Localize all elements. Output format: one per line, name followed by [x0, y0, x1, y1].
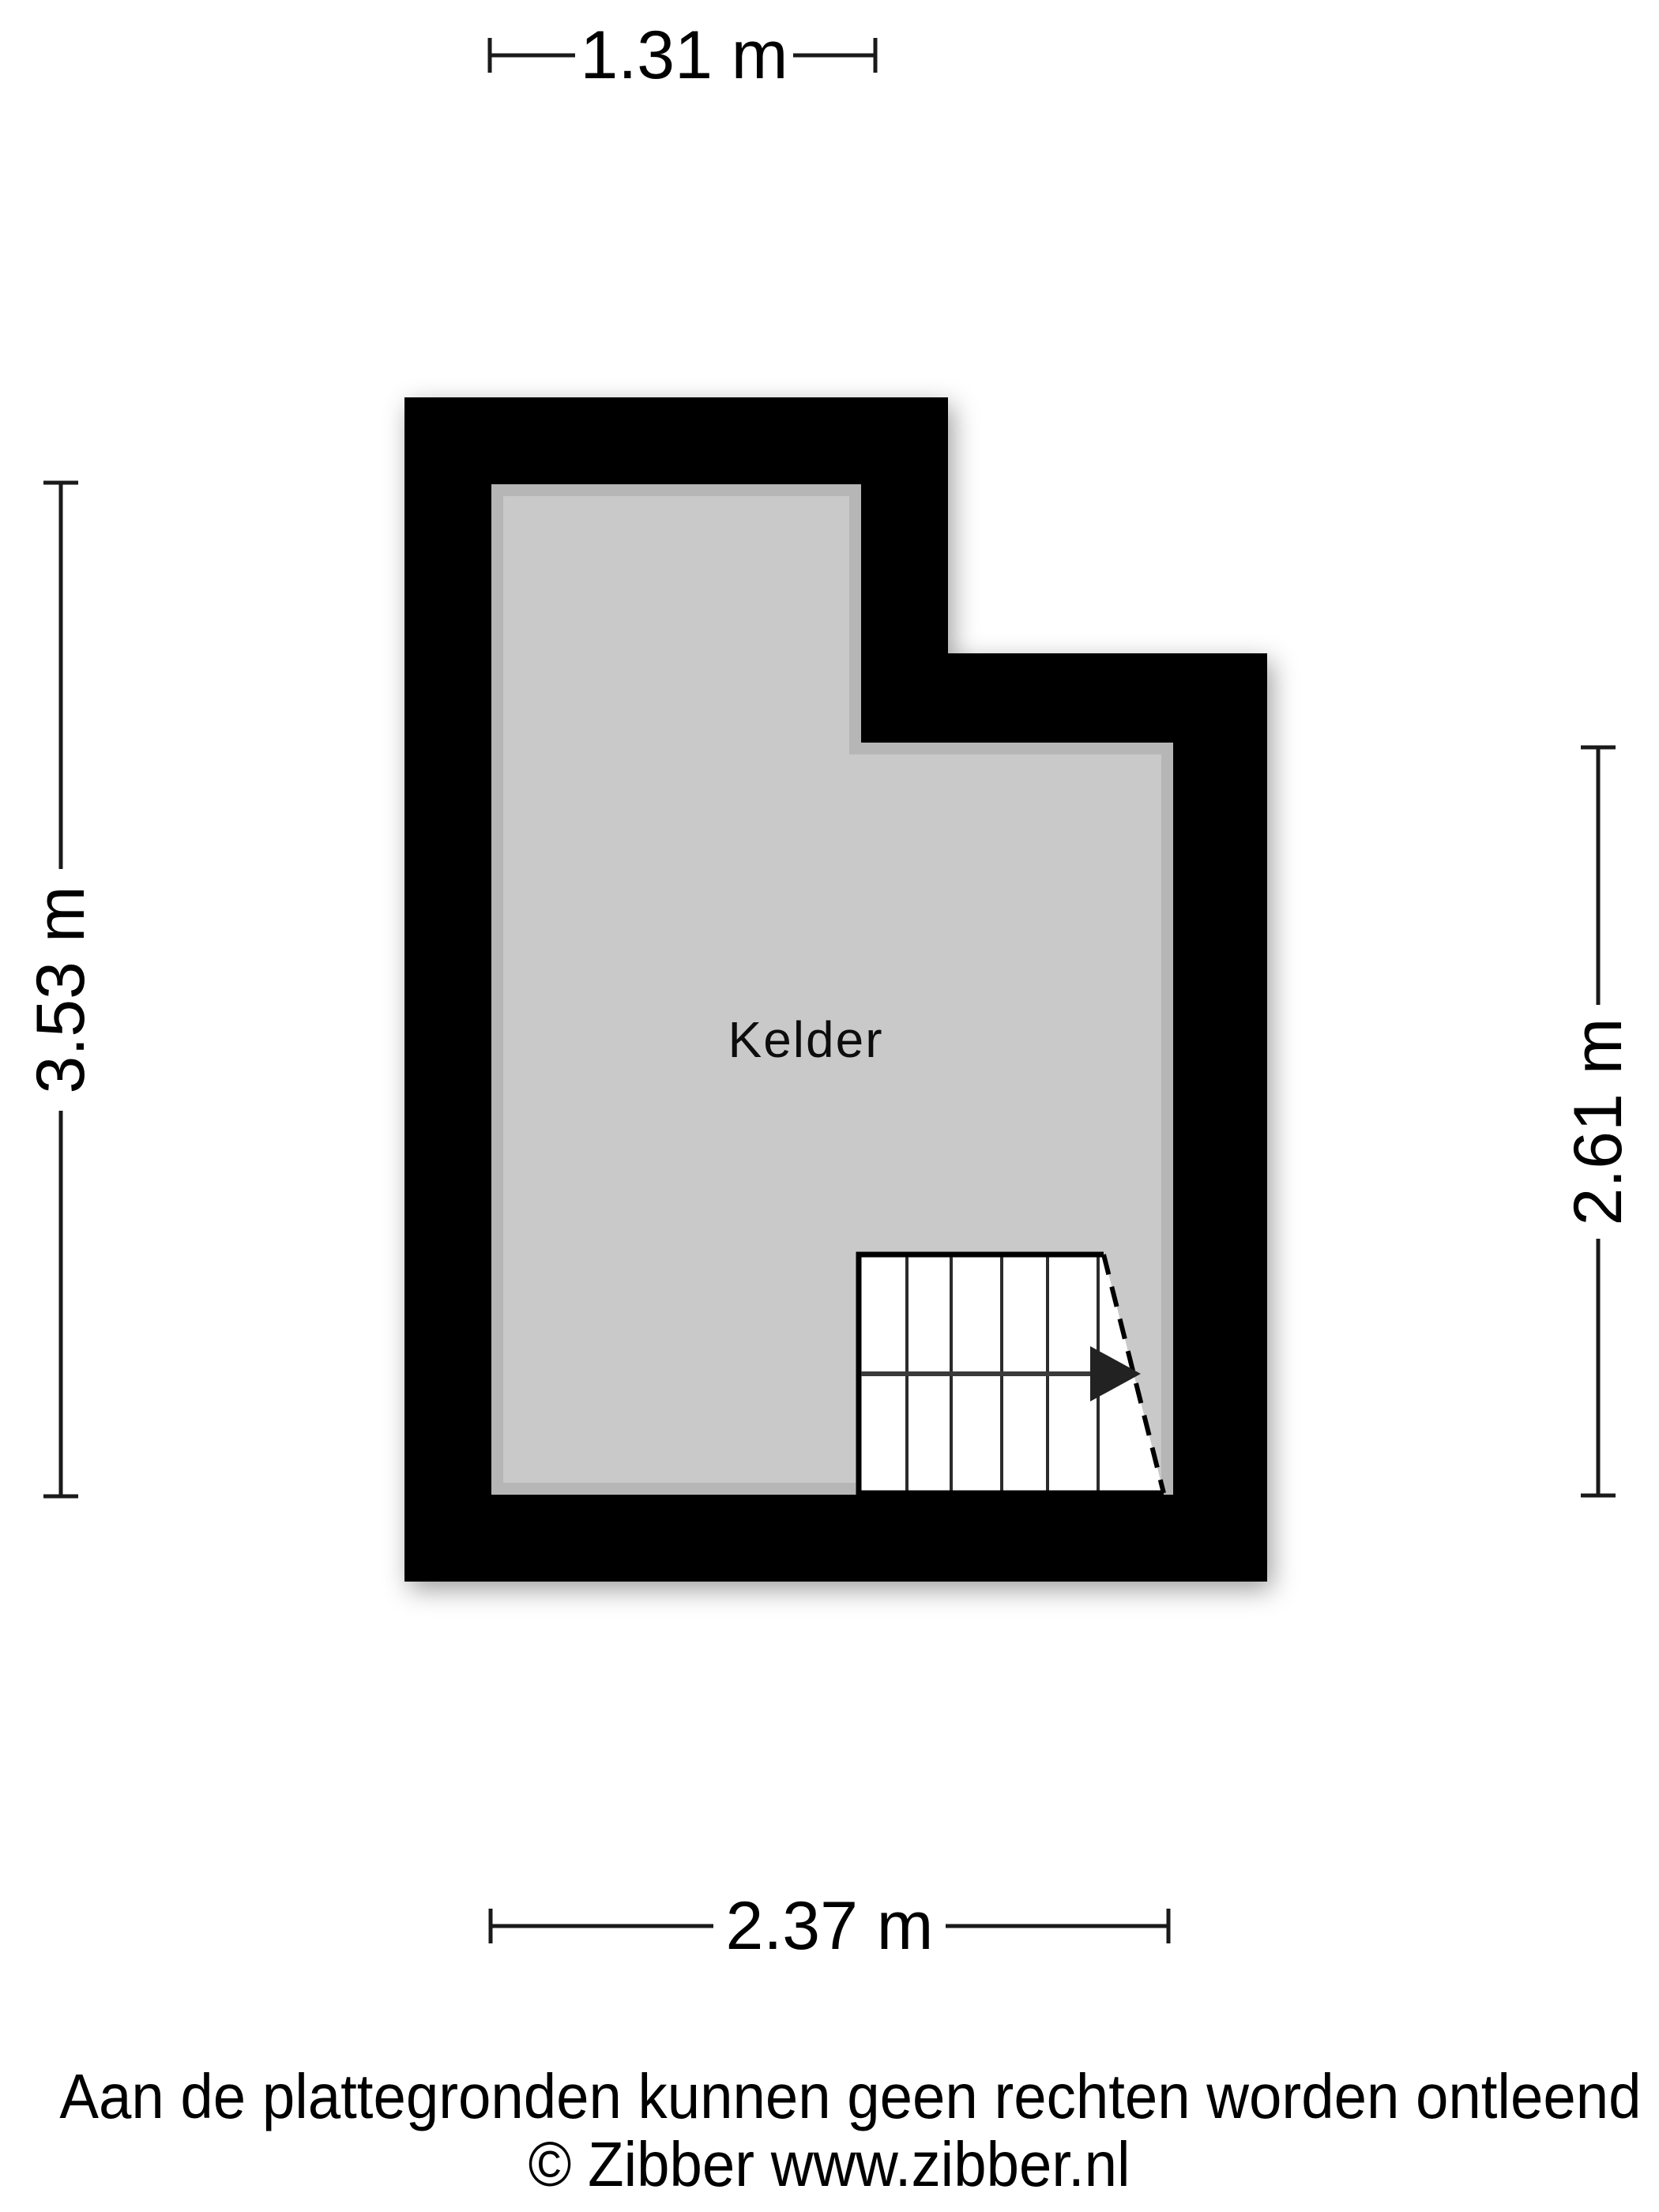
footer-disclaimer-text: Aan de plattegronden kunnen geen rechten…: [59, 2065, 1641, 2128]
footer-copyright: © Zibber www.zibber.nl: [0, 2133, 1659, 2196]
floorplan-page: Kelder 1.31 m 3.53 m 2.61 m: [0, 0, 1659, 2212]
dimension-bottom: 2.37 m: [491, 1888, 1168, 1964]
floor-plan: Kelder 1.31 m 3.53 m 2.61 m: [0, 0, 1659, 2212]
dimension-left: 3.53 m: [23, 483, 99, 1496]
dimension-right: 2.61 m: [1560, 747, 1636, 1495]
dimension-top: 1.31 m: [490, 17, 875, 93]
footer-copyright-text: © Zibber www.zibber.nl: [529, 2133, 1130, 2196]
room-label: Kelder: [728, 1011, 884, 1068]
dimension-label-top: 1.31 m: [581, 17, 788, 93]
dimension-label-left: 3.53 m: [23, 886, 99, 1094]
dimension-label-right: 2.61 m: [1560, 1018, 1636, 1226]
footer-disclaimer: Aan de plattegronden kunnen geen rechten…: [0, 2065, 1659, 2128]
dimension-label-bottom: 2.37 m: [726, 1888, 934, 1964]
